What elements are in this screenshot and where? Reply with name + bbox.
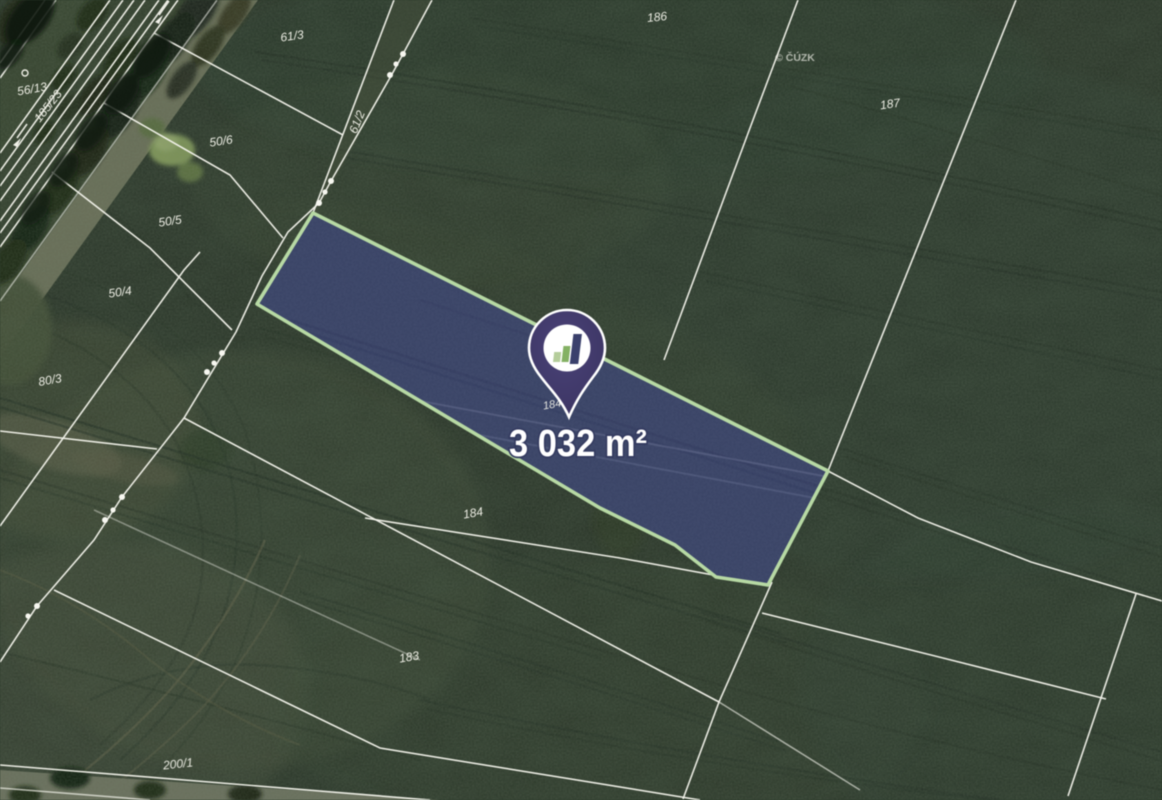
svg-text:187: 187 xyxy=(879,95,902,112)
svg-text:186: 186 xyxy=(646,9,668,25)
svg-text:© ČÚZK: © ČÚZK xyxy=(775,51,815,64)
svg-text:3 032 m²: 3 032 m² xyxy=(509,423,647,465)
